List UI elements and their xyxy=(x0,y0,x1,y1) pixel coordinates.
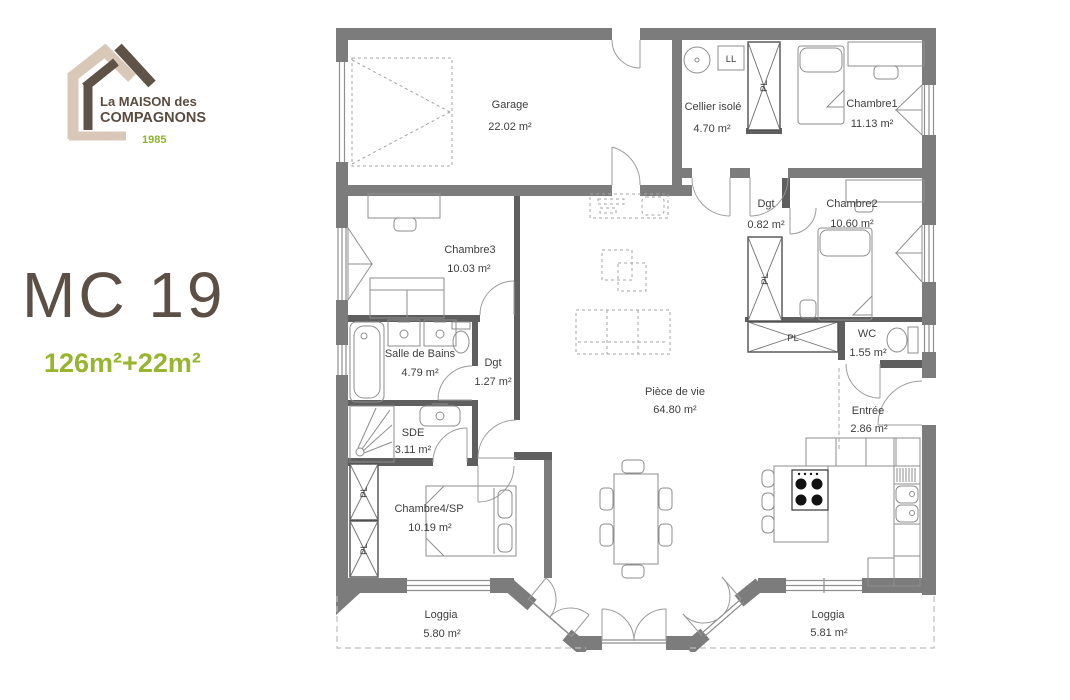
svg-text:11.13 m²: 11.13 m² xyxy=(851,118,894,130)
svg-text:10.60 m²: 10.60 m² xyxy=(830,218,874,230)
svg-text:Chambre4/SP: Chambre4/SP xyxy=(394,503,463,515)
shutter-icon xyxy=(896,110,922,135)
svg-text:Garage: Garage xyxy=(492,99,529,111)
bathtub-icon xyxy=(350,322,384,402)
svg-text:Chambre3: Chambre3 xyxy=(444,244,495,256)
closet-label: PL xyxy=(359,543,370,555)
svg-text:4.79 m²: 4.79 m² xyxy=(401,367,439,379)
room-label-cellier: Cellier isolé 4.70 m² xyxy=(685,101,742,135)
counter-icon xyxy=(894,438,920,586)
room-label-dgt-corridor: Dgt 1.27 m² xyxy=(474,357,512,388)
svg-text:SDE: SDE xyxy=(402,427,425,439)
chair-icon xyxy=(622,565,644,578)
living-furniture xyxy=(576,194,670,354)
desk-icon xyxy=(848,42,924,66)
svg-text:2.86 m²: 2.86 m² xyxy=(850,423,888,435)
salle-de-bains-fixtures xyxy=(350,320,470,402)
closet-hall: PL xyxy=(748,322,838,352)
side-table-icon xyxy=(602,250,632,280)
stool-icon xyxy=(762,493,774,510)
room-label-salle-de-bains: Salle de Bains 4.79 m² xyxy=(385,348,456,379)
chambre3-furniture xyxy=(368,194,444,318)
sink-icon xyxy=(424,320,456,346)
chambre4-furniture: PL PL xyxy=(350,464,516,577)
bed-icon xyxy=(818,228,872,320)
chair-icon xyxy=(874,66,898,79)
room-label-chambre1: Chambre1 11.13 m² xyxy=(846,98,897,130)
sink-icon xyxy=(388,320,420,346)
closet-label: PL xyxy=(760,273,771,285)
svg-text:1.55 m²: 1.55 m² xyxy=(849,347,887,359)
closet-label: PL xyxy=(759,80,770,92)
nightstand-icon xyxy=(800,300,816,318)
svg-text:0.82 m²: 0.82 m² xyxy=(747,219,785,231)
room-label-sde: SDE 3.11 m² xyxy=(395,427,432,456)
shutter-icon xyxy=(896,253,922,282)
plan-code: MC 19 xyxy=(22,258,312,332)
outer-walls xyxy=(336,28,936,651)
washing-machine-label: LL xyxy=(726,54,737,65)
dining-furniture xyxy=(600,460,672,578)
room-label-chambre3: Chambre3 10.03 m² xyxy=(444,244,495,275)
kitchen-fixtures xyxy=(762,438,920,586)
floor-plan-drawing: LL PL PL xyxy=(330,20,942,652)
room-label-entree: Entrée 2.86 m² xyxy=(850,405,888,435)
counter-icon xyxy=(806,438,896,466)
floor-plan-svg: LL PL PL xyxy=(330,20,942,652)
svg-text:Dgt: Dgt xyxy=(484,357,501,369)
desk-icon xyxy=(368,194,440,218)
svg-text:Chambre2: Chambre2 xyxy=(826,198,877,210)
svg-text:10.19 m²: 10.19 m² xyxy=(408,522,452,534)
svg-text:64.80 m²: 64.80 m² xyxy=(653,404,697,416)
pillow-icon xyxy=(498,524,512,552)
bed-icon xyxy=(798,46,844,124)
stool-icon xyxy=(762,516,774,533)
svg-text:5.80 m²: 5.80 m² xyxy=(423,628,461,640)
svg-text:5.81 m²: 5.81 m² xyxy=(810,627,848,639)
garage-door xyxy=(352,58,452,166)
closet-label: PL xyxy=(359,486,370,498)
svg-text:1.27 m²: 1.27 m² xyxy=(474,376,512,388)
logo-text-line1: La MAISON des xyxy=(100,94,197,109)
water-heater-icon xyxy=(684,47,710,73)
room-label-wc: WC 1.55 m² xyxy=(849,328,887,359)
shutter-icon xyxy=(896,225,922,253)
plan-surface: 126m²+22m² xyxy=(44,348,201,379)
chair-icon xyxy=(600,488,613,510)
dining-table-icon xyxy=(614,474,658,564)
svg-text:Chambre1: Chambre1 xyxy=(846,98,897,110)
chair-icon xyxy=(600,524,613,546)
svg-text:Dgt: Dgt xyxy=(757,198,774,210)
svg-text:10.03 m²: 10.03 m² xyxy=(447,263,491,275)
logo-text-line2: COMPAGNONS xyxy=(100,110,206,126)
chair-icon xyxy=(659,524,672,546)
drainer-icon xyxy=(897,468,915,482)
room-label-loggia-left: Loggia 5.80 m² xyxy=(423,609,461,640)
double-bed-icon xyxy=(426,486,516,556)
shutter-icon xyxy=(348,264,372,300)
svg-text:Entrée: Entrée xyxy=(852,405,884,417)
svg-text:Salle de Bains: Salle de Bains xyxy=(385,348,456,360)
room-label-piece-de-vie: Pièce de vie 64.80 m² xyxy=(645,386,705,416)
svg-text:Loggia: Loggia xyxy=(811,609,845,621)
toilet-icon xyxy=(908,327,918,353)
room-label-loggia-right: Loggia 5.81 m² xyxy=(810,609,848,639)
chair-icon xyxy=(659,488,672,510)
svg-text:3.11 m²: 3.11 m² xyxy=(395,444,432,456)
house-logo-icon: La MAISON des COMPAGNONS 1985 xyxy=(60,38,210,156)
wc-fixtures xyxy=(887,327,918,353)
svg-text:Pièce de vie: Pièce de vie xyxy=(645,386,705,398)
sofa-icon xyxy=(576,310,670,354)
company-logo: La MAISON des COMPAGNONS 1985 xyxy=(60,38,210,156)
floor-plan-page: La MAISON des COMPAGNONS 1985 MC 19 126m… xyxy=(0,0,1070,700)
logo-year: 1985 xyxy=(142,134,166,146)
stool-icon xyxy=(762,470,774,487)
svg-text:4.70 m²: 4.70 m² xyxy=(693,123,731,135)
room-label-chambre4: Chambre4/SP 10.19 m² xyxy=(394,503,463,534)
svg-text:22.02 m²: 22.02 m² xyxy=(488,121,532,133)
shutter-icon xyxy=(348,228,372,264)
svg-text:Loggia: Loggia xyxy=(424,609,458,621)
room-label-chambre2: Chambre2 10.60 m² xyxy=(826,198,877,230)
room-labels: Garage 22.02 m² Cellier isolé 4.70 m² Ch… xyxy=(385,98,898,640)
room-label-garage: Garage 22.02 m² xyxy=(488,99,532,133)
desk-icon xyxy=(590,194,668,218)
chair-icon xyxy=(394,218,416,231)
sink-icon xyxy=(420,406,460,426)
cellier-fixtures: LL xyxy=(684,46,744,73)
svg-text:WC: WC xyxy=(858,328,876,340)
closet-top: PL xyxy=(748,42,780,130)
shutter-icon xyxy=(896,85,922,110)
toilet-icon xyxy=(452,322,470,329)
svg-text:Cellier isolé: Cellier isolé xyxy=(685,101,742,113)
chair-icon xyxy=(622,460,644,473)
closet-label: PL xyxy=(787,333,799,344)
